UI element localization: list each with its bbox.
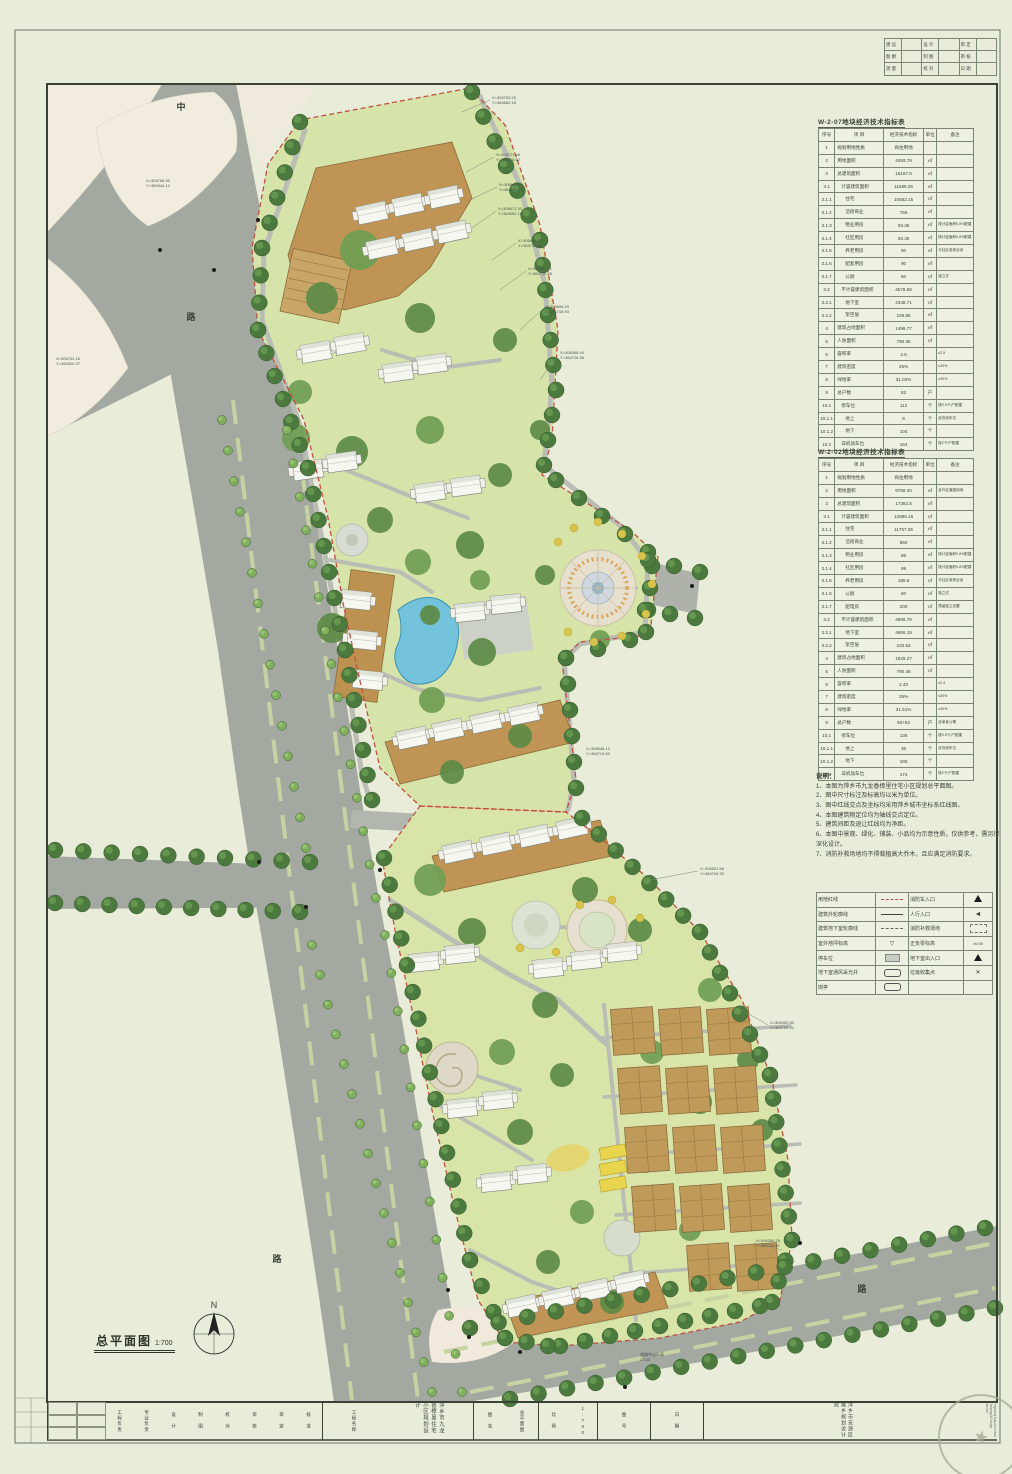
road-name-char: 中 [176,101,185,112]
scale-cell: 比 例 1:700 [538,1402,597,1440]
coordinate-annotation: X=306695.10 Y=384684.27 [499,182,523,192]
coordinate-annotation: X=306672.33 Y=384690.15 [498,206,522,216]
sheet-name-value: 总平面图 [519,1410,525,1432]
indicator-table-2: 序号项 目经济技术指标单位备注1规划用地性质商住用地2用地面积9759.40㎡含… [818,458,974,781]
signature-corner-table: 建 设设 计审 定勘 察制 图审 核测 量校 对日 期 [884,38,997,76]
drawing-title-text: 总平面图 [96,1334,152,1348]
road-name-char: 路 [272,1253,282,1264]
scale-value: 1:700 [580,1406,585,1436]
coordinate-annotation: X=306624.71 Y=384710.46 [528,266,552,276]
indicator-table-1-title: W-2-07地块经济技术指标表 [818,116,905,128]
project-label: 工程名称 [351,1410,357,1432]
coordinate-annotation: X=306702.16 Y=384520.37 [56,356,80,366]
coordinate-annotation: X=306568.44 Y=384726.58 [560,350,584,360]
coordinate-annotation: X=306452.80 Y=384752.41 [770,1020,794,1030]
drawing-title-label: 总平面图1:700 [94,1332,175,1353]
signature-columns: 工程负责专业负责设 计制 图校 对审 核审 定核 准 [106,1402,322,1440]
project-name: 萍乡市九龙香樟里住宅小区规划设计 [413,1402,445,1440]
seal-star-icon: ★ [970,1425,991,1450]
indicator-table-2-title: W-2-02地块经济技术指标表 [818,446,905,458]
drawing-sheet: N 中路路路 建 设设 计审 定勘 察制 图审 核测 量校 对日 期 W-2-0… [0,0,1012,1474]
number-cell: 图 号 [597,1402,650,1440]
institute-name-cn: 萍乡市安源区城乡规划设计院 [833,1402,854,1440]
coordinate-annotation: 道路中心标高 23.50 [640,1352,664,1362]
svg-text:N: N [211,1300,218,1310]
indicator-table-1: 序号项 目经济技术指标单位备注1规划用地性质商住用地2用地面积4493.79㎡3… [818,128,974,451]
sheet-name-cell: 图 名 总平面图 [473,1402,538,1440]
drawing-scale: 1:700 [155,1340,173,1347]
legend-table: 用地红线消防车入口建筑外轮廓线人行入口◄建筑地下室轮廓线消防补救场地室外地坪标高… [816,892,988,995]
scale-label: 比 例 [551,1412,557,1429]
coordinate-annotation: X=306548.12 Y=384714.60 [586,746,610,756]
drawing-number-label: 图 号 [621,1412,627,1429]
notes-block: 说明：1、本图为萍乡市九龙香樟里住宅小区规划总平面图。2、图中尺寸标注及标高均以… [816,772,1000,860]
project-name-cell: 工程名称 萍乡市九龙香樟里住宅小区规划设计 [322,1402,473,1440]
road-name-char: 路 [857,1283,867,1294]
coordinate-annotation: X=306380.25 Y=384760.87 [756,1238,780,1248]
fountain-plaza [560,550,636,626]
sheet-name-label: 图 名 [487,1412,493,1429]
road-name-char: 路 [186,311,196,322]
parking-stalls [599,1144,627,1192]
coordinate-annotation: X=306721.48 Y=384678.62 [496,152,520,162]
date-label: 日 期 [674,1412,680,1429]
revision-grid [47,1402,106,1440]
coordinate-annotation: X=306521.66 Y=384709.33 [700,866,724,876]
title-block: 工程负责专业负责设 计制 图校 对审 核审 定核 准 工程名称 萍乡市九龙香樟里… [47,1402,997,1440]
coordinate-annotation: X=306648.52 Y=384702.84 [518,238,542,248]
date-cell: 日 期 [650,1402,703,1440]
coordinate-annotation: X=306596.20 Y=384718.93 [545,304,569,314]
coordinate-annotation: X=306753.25 Y=384662.18 [492,95,516,105]
coordinate-annotation: X=306768.90 Y=384544.12 [146,178,170,188]
